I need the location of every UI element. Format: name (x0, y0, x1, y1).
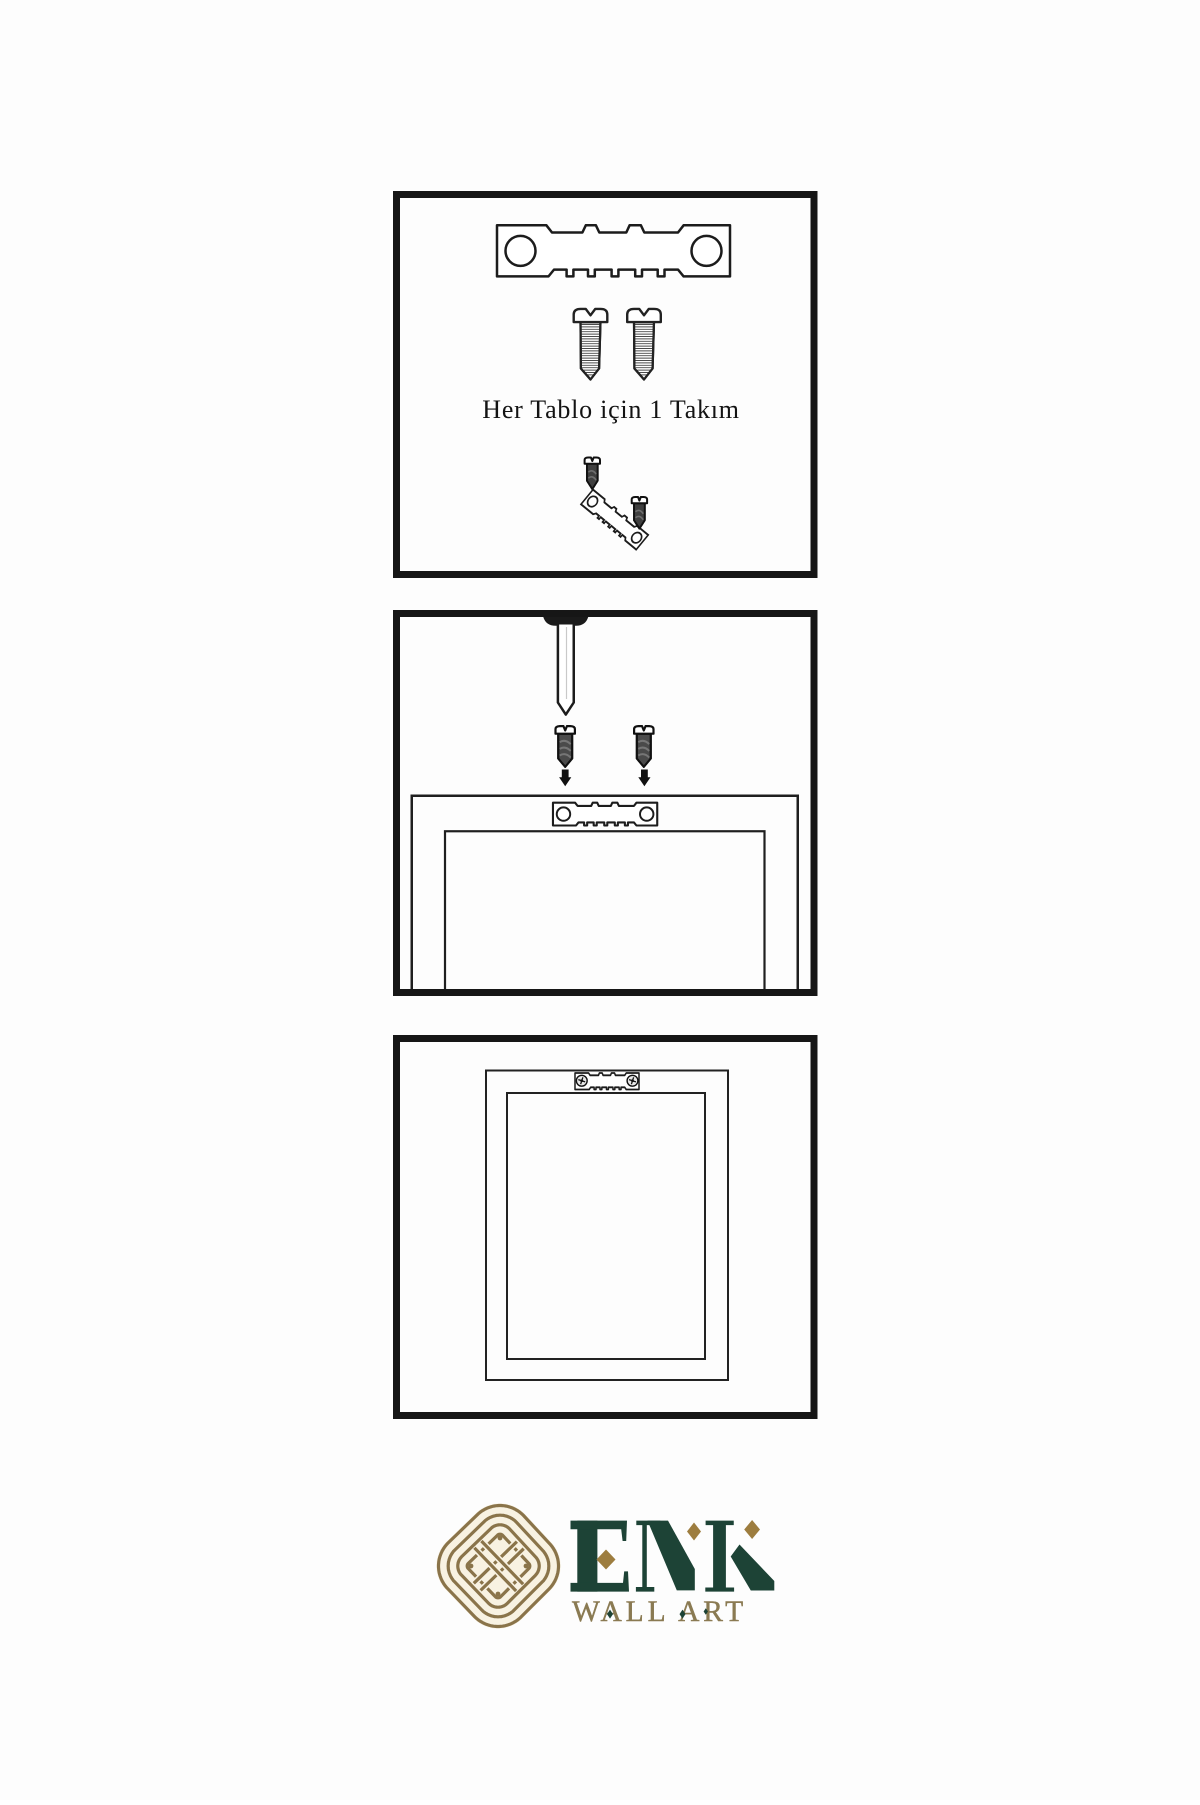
svg-text:Her Tablo için 1 Takım: Her Tablo için 1 Takım (482, 395, 739, 424)
svg-text:WALL ART: WALL ART (572, 1596, 747, 1628)
